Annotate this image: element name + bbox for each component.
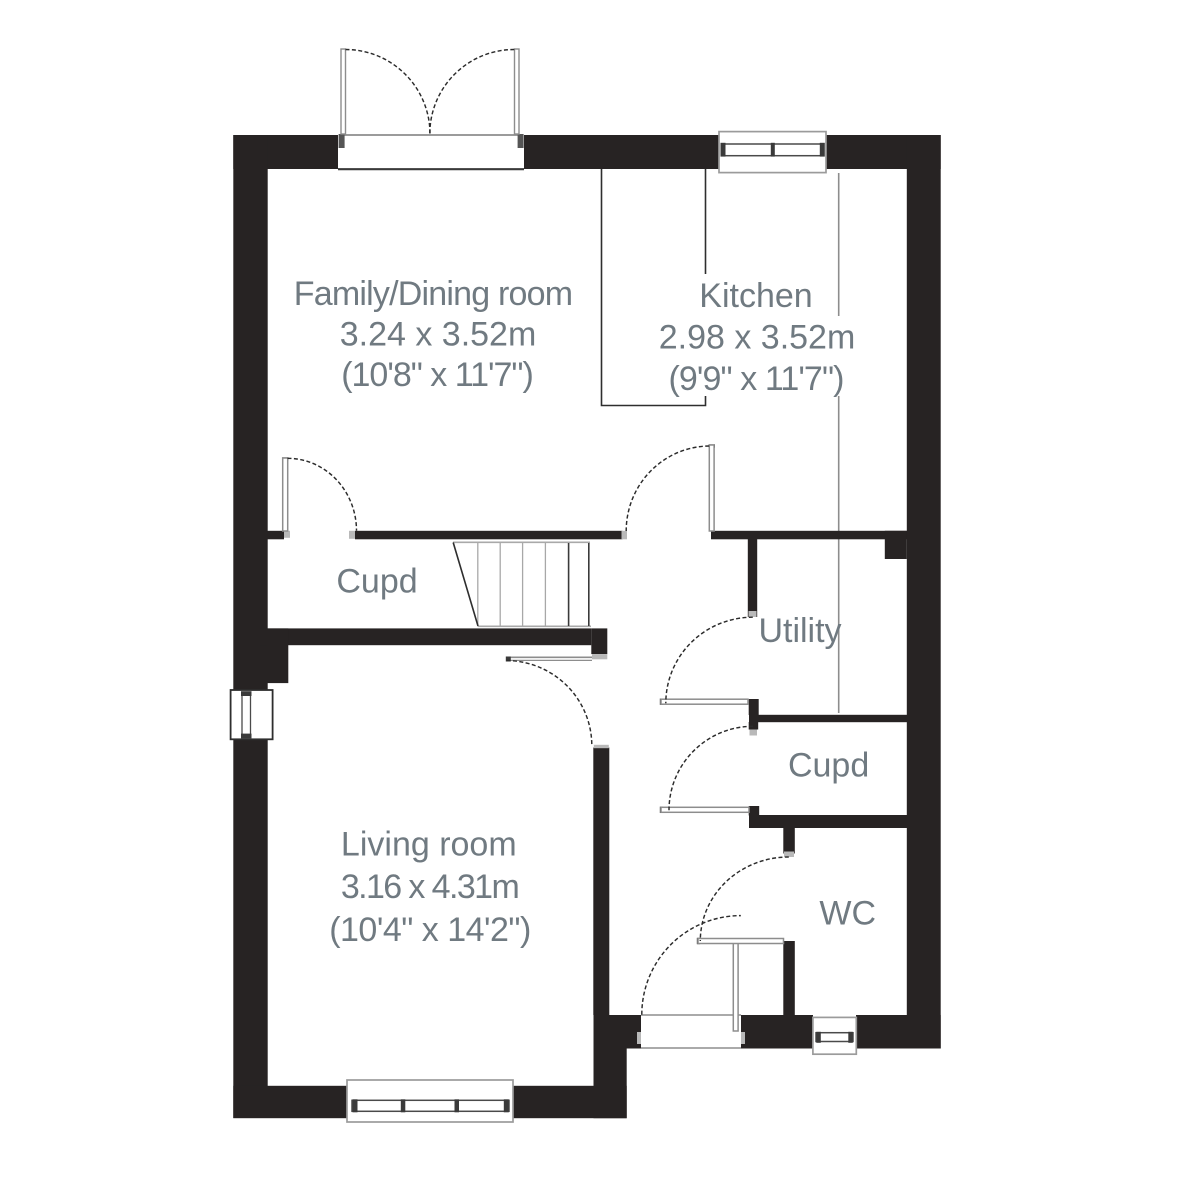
svg-text:(9'9" x 11'7"): (9'9" x 11'7") — [668, 360, 843, 398]
svg-text:(10'8" x 11'7"): (10'8" x 11'7") — [341, 356, 533, 394]
svg-text:WC: WC — [819, 894, 876, 932]
svg-text:(10'4" x 14'2"): (10'4" x 14'2") — [329, 911, 531, 949]
svg-text:Living room: Living room — [341, 826, 517, 864]
svg-text:Family/Dining room: Family/Dining room — [294, 275, 572, 313]
svg-text:3.16 x 4.31m: 3.16 x 4.31m — [341, 868, 519, 906]
svg-text:Cupd: Cupd — [788, 747, 869, 785]
svg-text:3.24 x 3.52m: 3.24 x 3.52m — [340, 316, 537, 354]
svg-text:Cupd: Cupd — [336, 562, 417, 600]
svg-text:2.98 x 3.52m: 2.98 x 3.52m — [659, 319, 856, 357]
svg-text:Utility: Utility — [758, 612, 841, 650]
svg-text:Kitchen: Kitchen — [699, 277, 812, 315]
